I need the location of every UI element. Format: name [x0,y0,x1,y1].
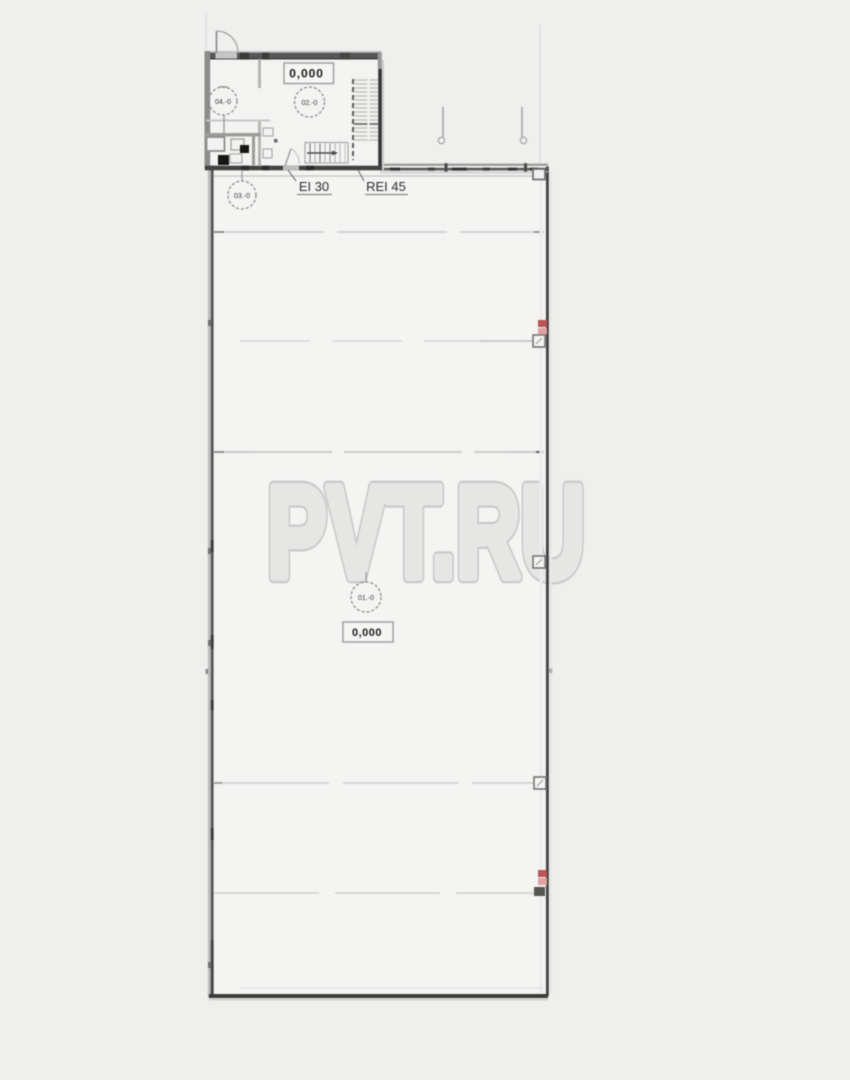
svg-text:04.-0: 04.-0 [215,99,231,106]
svg-text:01.-0: 01.-0 [358,595,374,602]
svg-text:03.-0: 03.-0 [234,193,250,200]
svg-text:0,000: 0,000 [352,627,382,639]
svg-text:REI 45: REI 45 [366,179,406,194]
svg-text:PVT.RU: PVT.RU [267,458,585,605]
svg-text:0,000: 0,000 [289,67,324,81]
svg-text:02.-0: 02.-0 [302,100,318,107]
svg-text:EI 30: EI 30 [299,179,329,194]
